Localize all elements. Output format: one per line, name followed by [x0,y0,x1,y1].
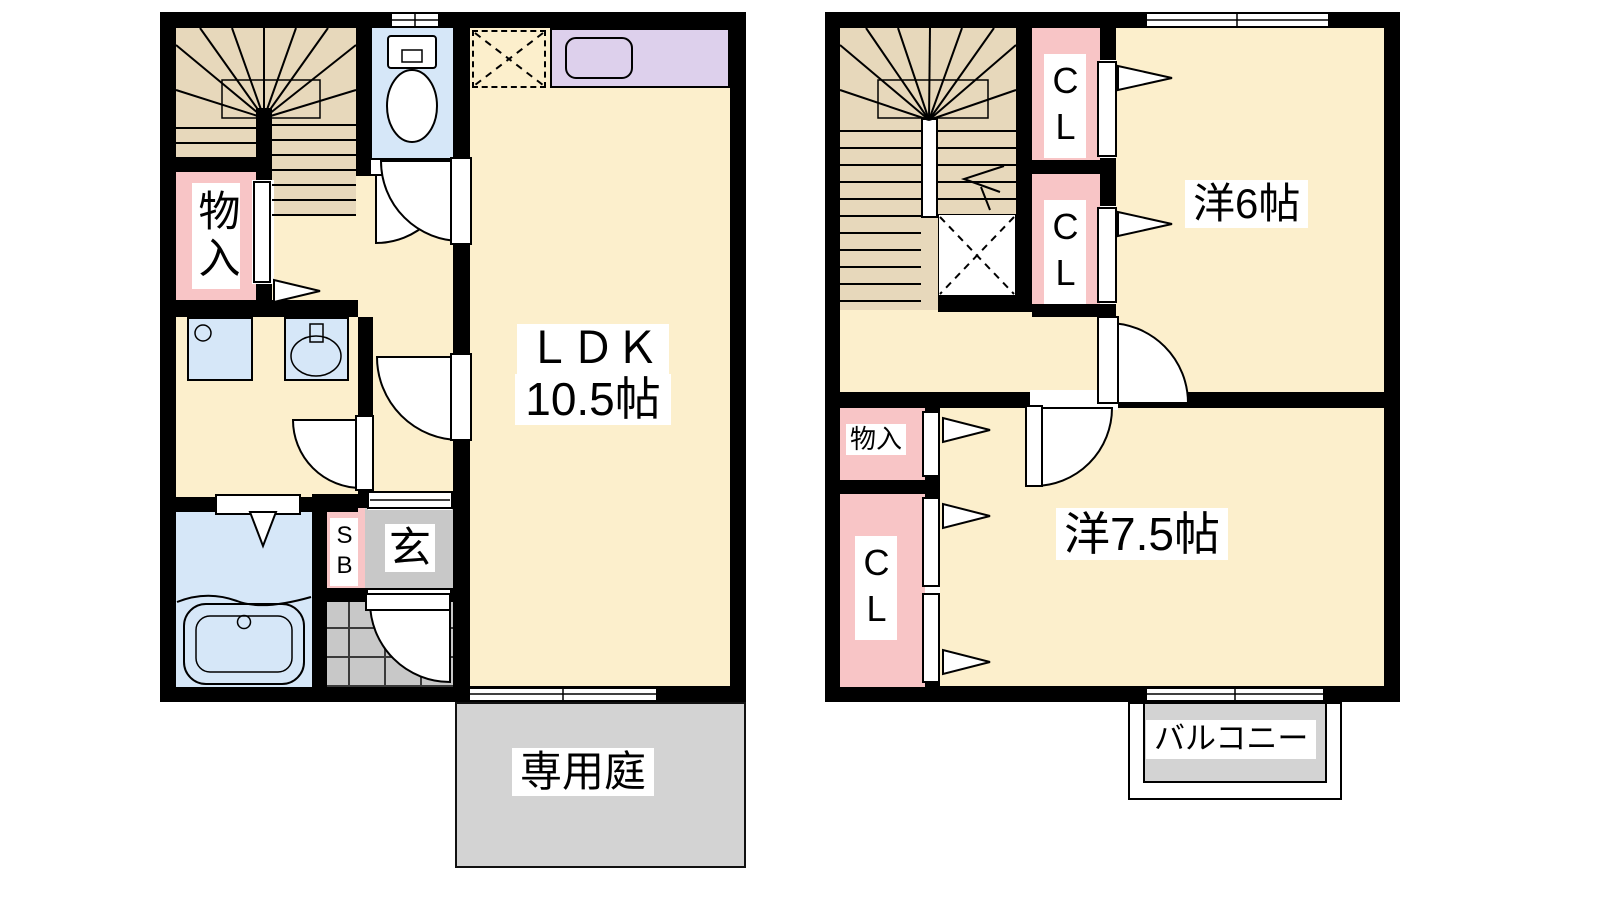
floorplan-canvas: ＬＤＫ 10.5帖 物入 SB 玄 専用庭 CL CL 洋6帖 物入 CL 洋7… [0,0,1600,900]
door-opening [453,160,470,244]
wall-segment [356,28,372,176]
door-opening [925,498,940,682]
room-label-shoe-box: SB [330,518,358,586]
ldk-name: ＬＤＫ [517,324,669,374]
room-label-garden: 専用庭 [512,748,654,796]
kitchen-counter [550,28,730,88]
window-western6 [1145,12,1330,28]
wall-segment [176,157,272,172]
wall-segment [176,300,358,317]
room-label-balcony: バルコニー [1146,720,1316,759]
room-label-closet-bottom: CL [855,536,897,640]
door-opening [453,356,470,440]
room-label-western6: 洋6帖 [1185,180,1308,228]
door-opening [368,492,452,510]
room-label-closet-middle: CL [1044,200,1086,304]
door-opening [1100,206,1116,304]
wall-segment [1032,160,1100,174]
wall-segment [1016,28,1032,312]
wall-segment [840,480,940,494]
door-opening [358,415,373,490]
room-label-closet-top: CL [1044,54,1086,158]
door-opening [925,412,940,476]
door-opening [252,180,274,284]
room-label-ldk: ＬＤＫ 10.5帖 [493,324,693,425]
window-western75-balcony [1145,687,1325,702]
stair-handrail [921,118,938,218]
ldk-size: 10.5帖 [515,374,671,426]
window-toilet [390,12,440,28]
room-label-storage-1f: 物入 [192,183,240,289]
wall-segment [938,296,1032,312]
entrance-tile-floor [312,602,455,687]
room-toilet [372,28,453,160]
room-label-entrance: 玄 [385,524,435,572]
door-opening [368,590,450,604]
room-label-storage-2f: 物入 [846,424,906,455]
room-label-western75: 洋7.5帖 [1056,508,1228,560]
window-ldk-garden [468,687,658,702]
room-bathroom [176,512,312,687]
door-opening [216,495,300,514]
refrigerator-space [472,30,546,88]
stair-void [938,214,1016,296]
door-opening [1030,390,1118,410]
door-opening [1100,60,1116,158]
